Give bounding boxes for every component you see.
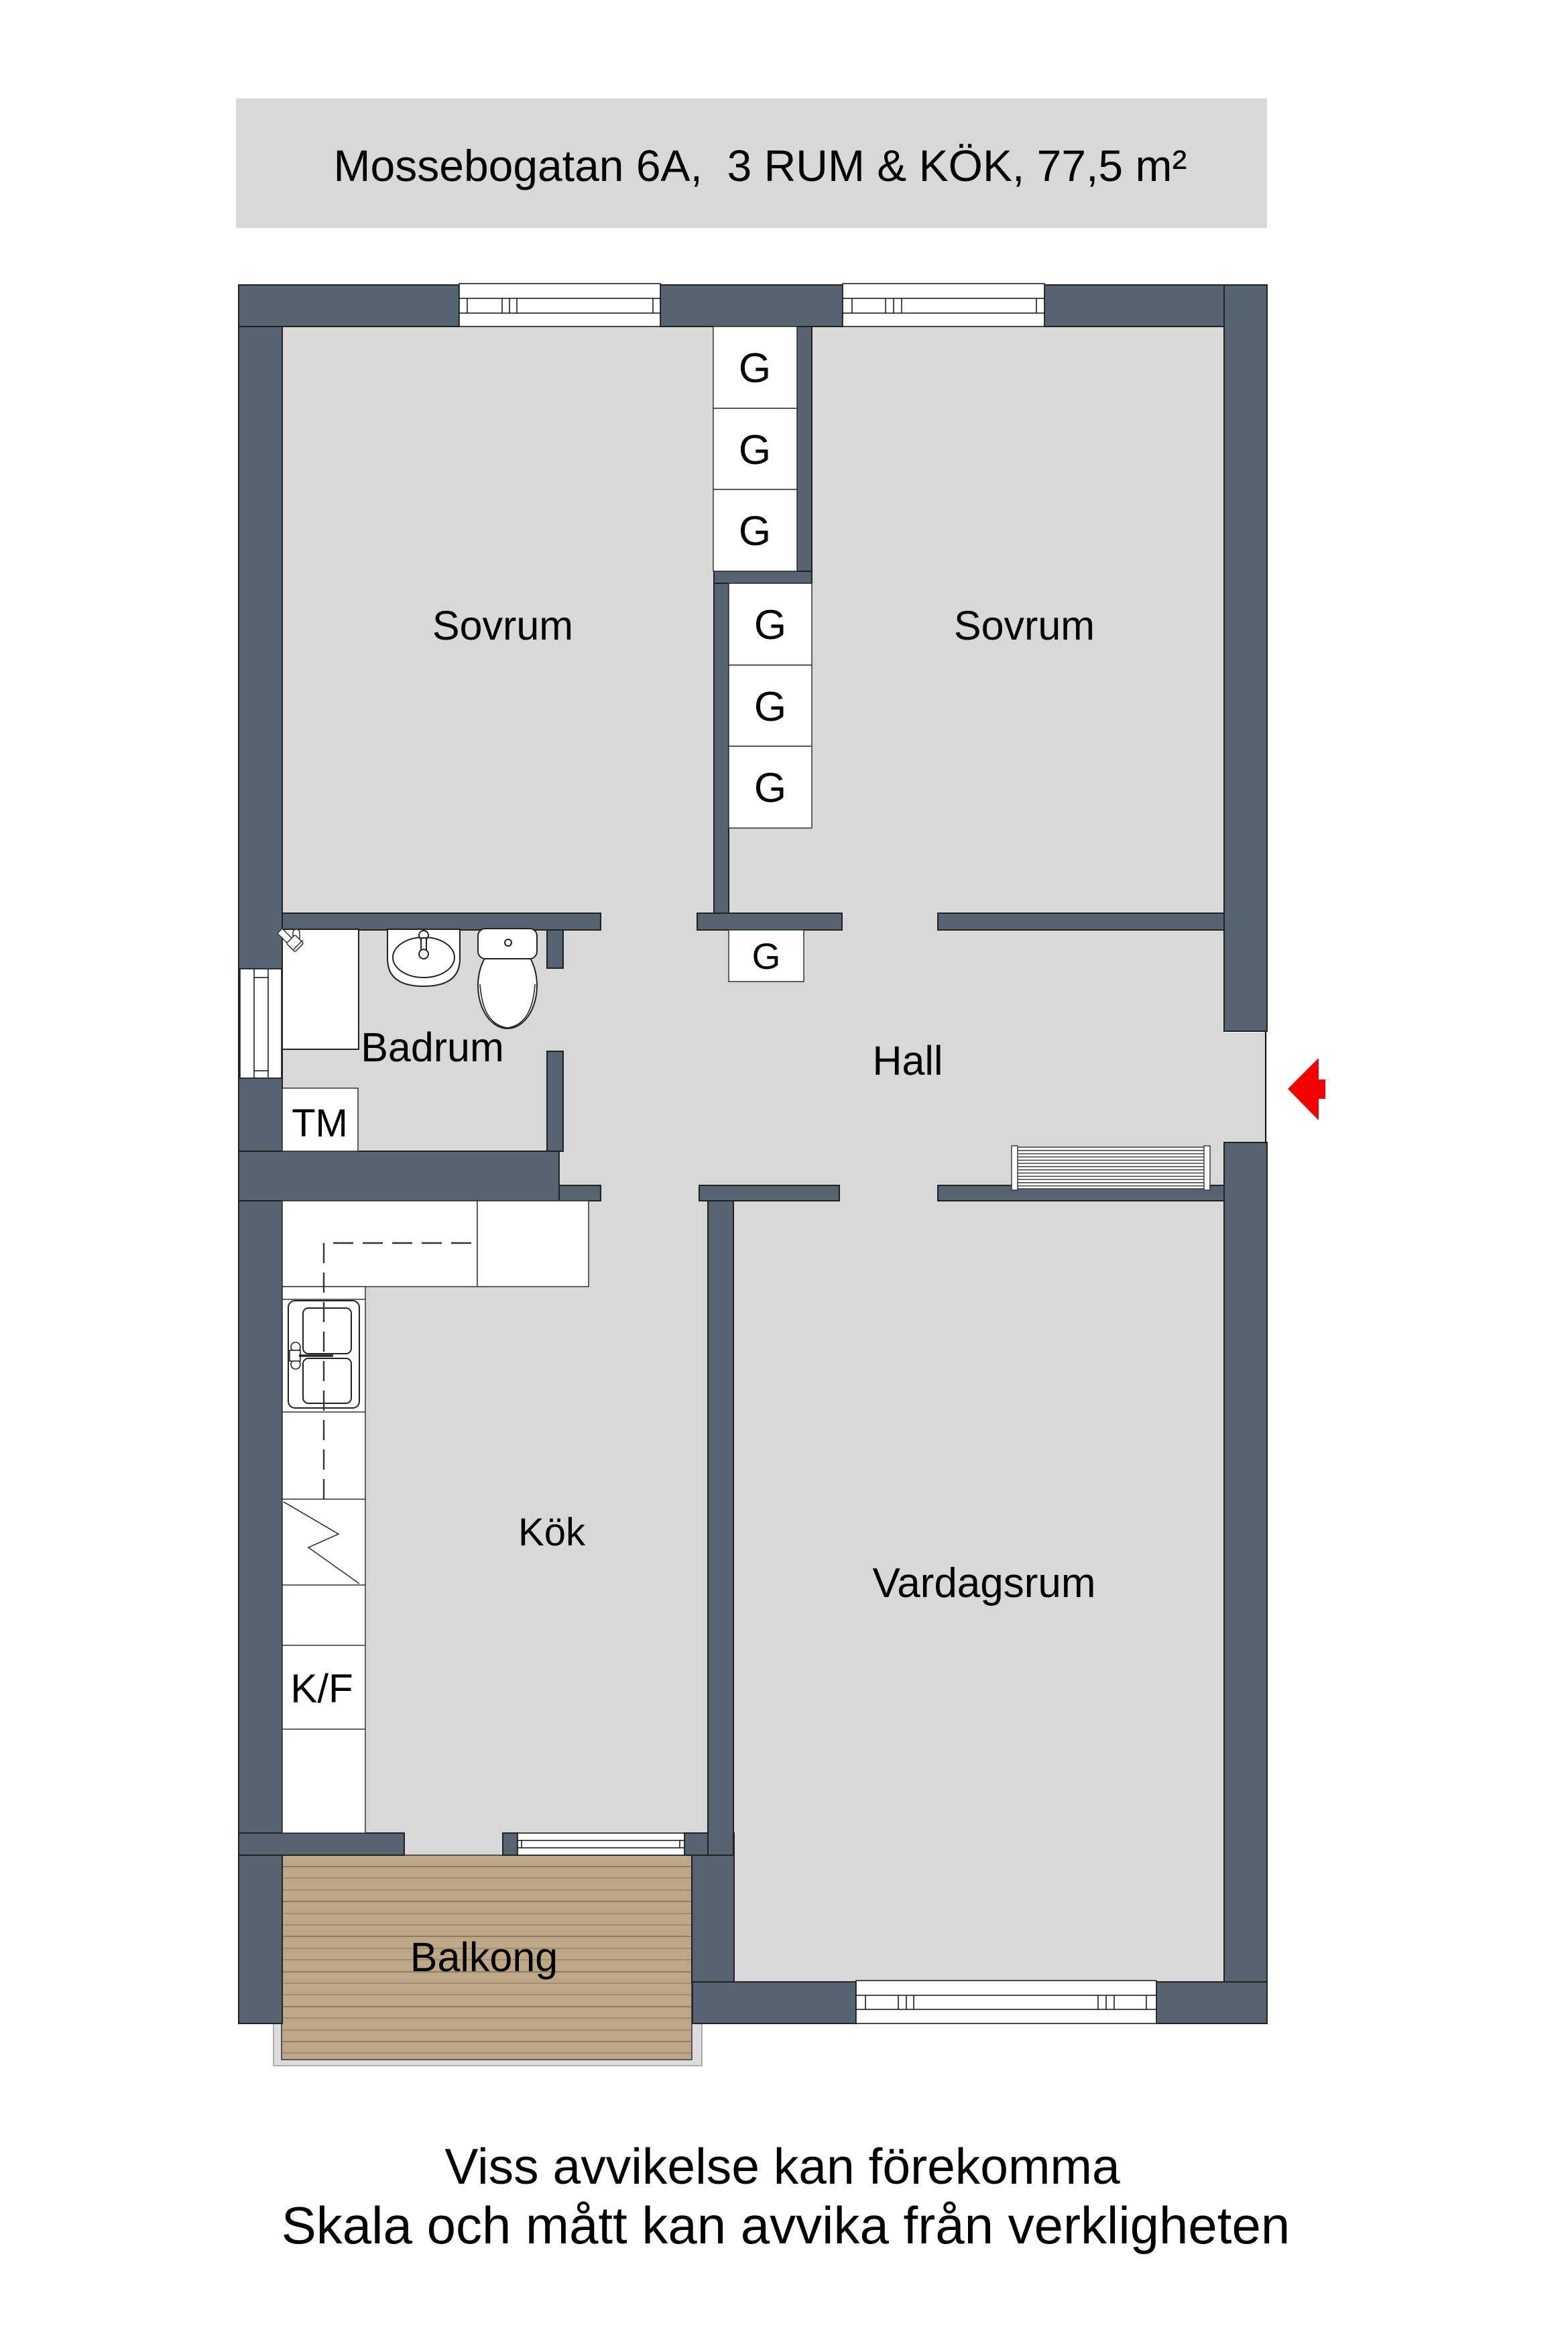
svg-text:Sovrum: Sovrum	[432, 603, 573, 648]
svg-text:K/F: K/F	[290, 1666, 353, 1711]
svg-text:G: G	[739, 345, 771, 392]
svg-text:Balkong: Balkong	[410, 1934, 558, 1980]
svg-text:G: G	[754, 602, 786, 648]
svg-text:Kök: Kök	[518, 1511, 586, 1554]
svg-text:Vardagsrum: Vardagsrum	[872, 1560, 1095, 1606]
svg-text:G: G	[754, 684, 786, 730]
svg-text:Skala och mått kan avvika från: Skala och mått kan avvika från verklighe…	[282, 2196, 1290, 2255]
svg-text:Viss avvikelse kan förekomma: Viss avvikelse kan förekomma	[444, 2138, 1120, 2194]
svg-text:G: G	[754, 765, 786, 811]
svg-text:Sovrum: Sovrum	[954, 603, 1095, 648]
svg-text:TM: TM	[292, 1102, 348, 1145]
svg-text:Badrum: Badrum	[361, 1024, 504, 1070]
svg-text:G: G	[752, 935, 781, 977]
svg-text:Hall: Hall	[872, 1038, 943, 1083]
svg-text:Mossebogatan 6A, 3 RUM & KÖK,: Mossebogatan 6A, 3 RUM & KÖK, 77,5 m²	[334, 141, 1187, 190]
svg-text:G: G	[739, 427, 771, 473]
svg-text:G: G	[739, 508, 771, 554]
